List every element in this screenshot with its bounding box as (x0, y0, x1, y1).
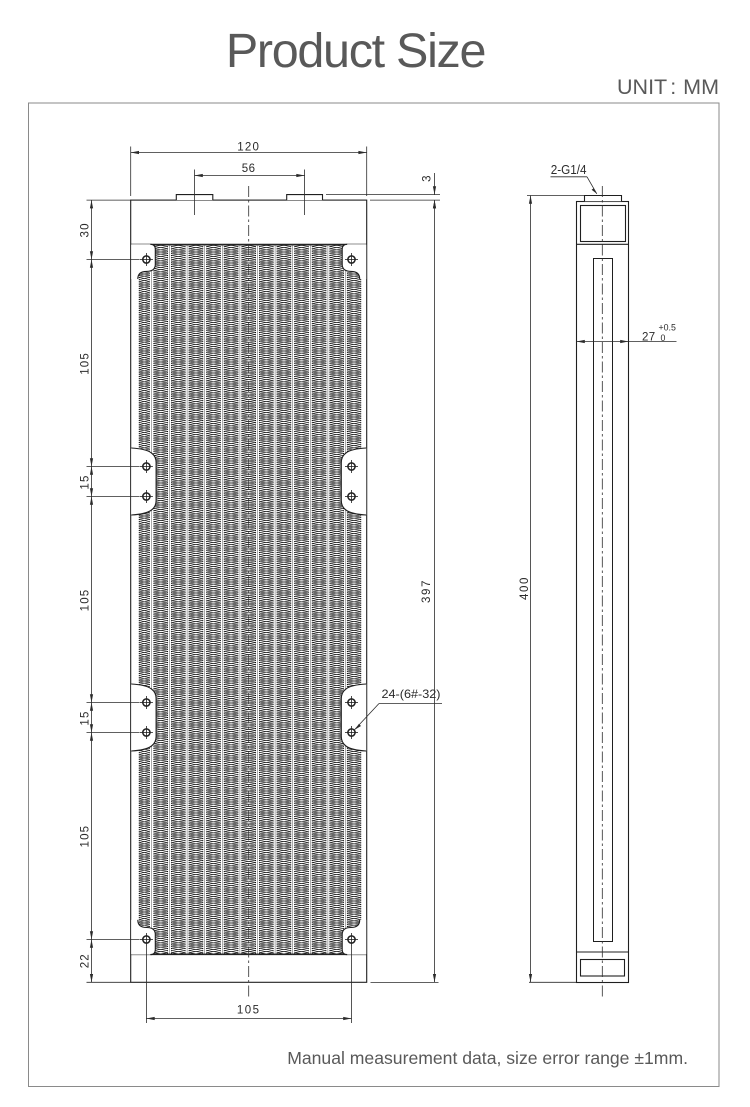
svg-text:105: 105 (80, 589, 92, 612)
svg-text:22: 22 (80, 953, 92, 968)
svg-text:0: 0 (661, 333, 666, 343)
svg-text:105: 105 (237, 1005, 261, 1017)
svg-text:120: 120 (237, 142, 260, 154)
svg-text:+0.5: +0.5 (659, 323, 676, 333)
svg-text:56: 56 (242, 163, 256, 175)
svg-text:105: 105 (80, 825, 92, 848)
svg-text:15: 15 (80, 474, 92, 489)
svg-text:397: 397 (421, 579, 433, 603)
svg-text:27: 27 (642, 332, 656, 344)
svg-text:24-(6#-32): 24-(6#-32) (382, 687, 441, 701)
svg-text:15: 15 (80, 710, 92, 725)
svg-text:30: 30 (80, 222, 92, 237)
svg-text:3: 3 (421, 175, 433, 181)
svg-text:105: 105 (80, 352, 92, 375)
svg-text:Manual measurement data, size: Manual measurement data, size error rang… (287, 1048, 688, 1068)
svg-text:2-G1/4: 2-G1/4 (551, 163, 587, 177)
svg-text:400: 400 (519, 576, 531, 600)
